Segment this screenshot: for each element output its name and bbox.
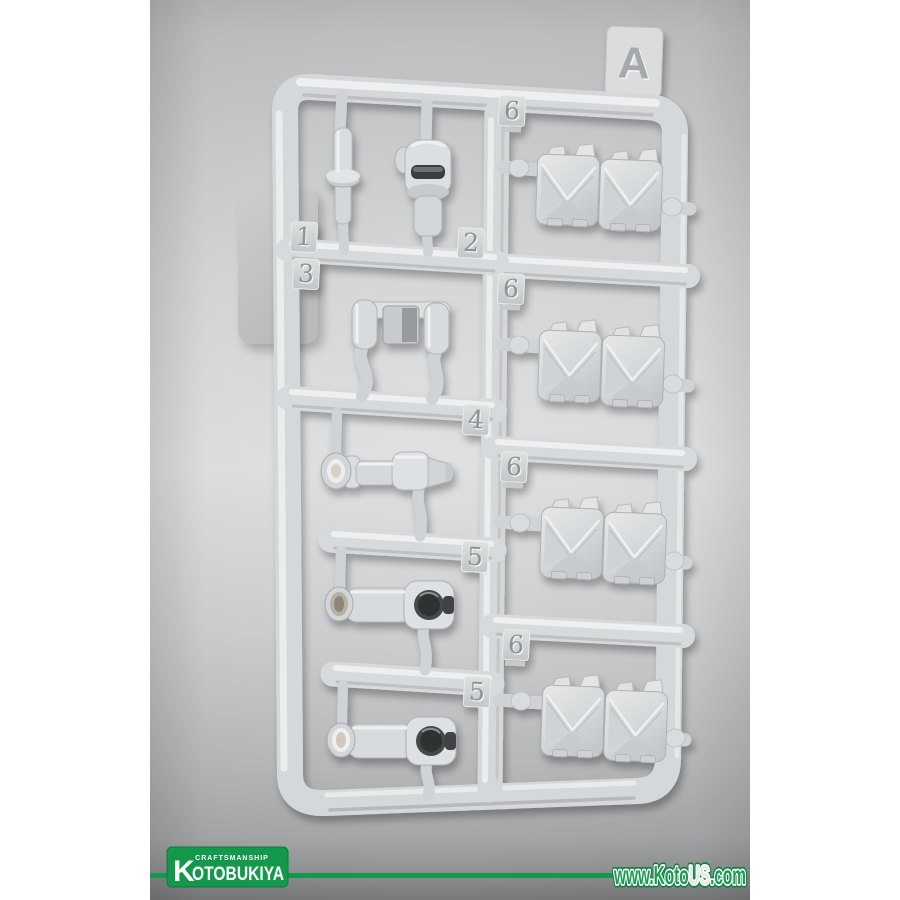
svg-text:6: 6 bbox=[502, 274, 519, 304]
svg-text:2: 2 bbox=[462, 228, 479, 258]
part-tag-2: 2 2 bbox=[457, 227, 485, 259]
part-tag-5b: 5 5 bbox=[463, 676, 491, 708]
svg-text:5: 5 bbox=[466, 542, 483, 572]
brand-tagline: CRAFTSMANSHIP bbox=[195, 855, 269, 862]
svg-text:6: 6 bbox=[503, 96, 520, 126]
svg-text:4: 4 bbox=[467, 405, 484, 435]
part-tag-5a: 5 5 bbox=[461, 541, 489, 573]
svg-text:6: 6 bbox=[505, 452, 522, 482]
runner-label: A bbox=[617, 38, 650, 88]
brand-name: OTOBUKIYA bbox=[192, 864, 284, 885]
svg-text:3: 3 bbox=[297, 259, 314, 289]
website-logo: www.KotoUS.com www.KotoUS.com www.KotoUS… bbox=[613, 860, 746, 890]
product-photo-page: A A bbox=[0, 0, 900, 900]
svg-text:6: 6 bbox=[507, 630, 524, 660]
website-text: www.KotoUS.com bbox=[613, 860, 746, 890]
part-tag-3: 3 3 bbox=[292, 258, 320, 290]
product-photo: A A bbox=[0, 0, 900, 900]
brand-logo: CRAFTSMANSHIP K OTOBUKIYA bbox=[167, 847, 288, 888]
svg-text:1: 1 bbox=[295, 222, 312, 252]
svg-text:5: 5 bbox=[468, 677, 485, 707]
part-tag-1: 1 1 bbox=[290, 221, 318, 253]
part-tag-4: 4 4 bbox=[462, 404, 490, 436]
